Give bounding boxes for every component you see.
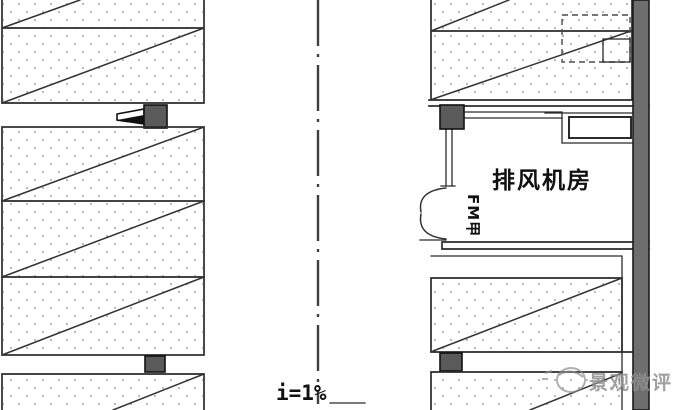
column-marker-room (440, 105, 464, 129)
column-marker-right (440, 353, 462, 371)
parking-block-right-middle (431, 278, 633, 352)
parking-block-left-bottom (2, 374, 204, 410)
parking-block-left-middle (2, 127, 204, 355)
slope-label: i=1% (276, 381, 327, 405)
column-marker-left (145, 356, 165, 372)
parking-block-left-top (2, 0, 204, 103)
garage-floor-plan: 排风机房 i=1% FM甲 景观微评 (0, 0, 681, 410)
plan-linework (0, 0, 681, 410)
jet-fan-icon (117, 105, 167, 128)
watermark-text: 景观微评 (589, 368, 673, 395)
structural-wall (633, 0, 649, 410)
double-swing-door-icon (420, 186, 455, 240)
fire-door-tag: FM甲 (463, 194, 484, 237)
room-label: 排风机房 (492, 161, 592, 195)
